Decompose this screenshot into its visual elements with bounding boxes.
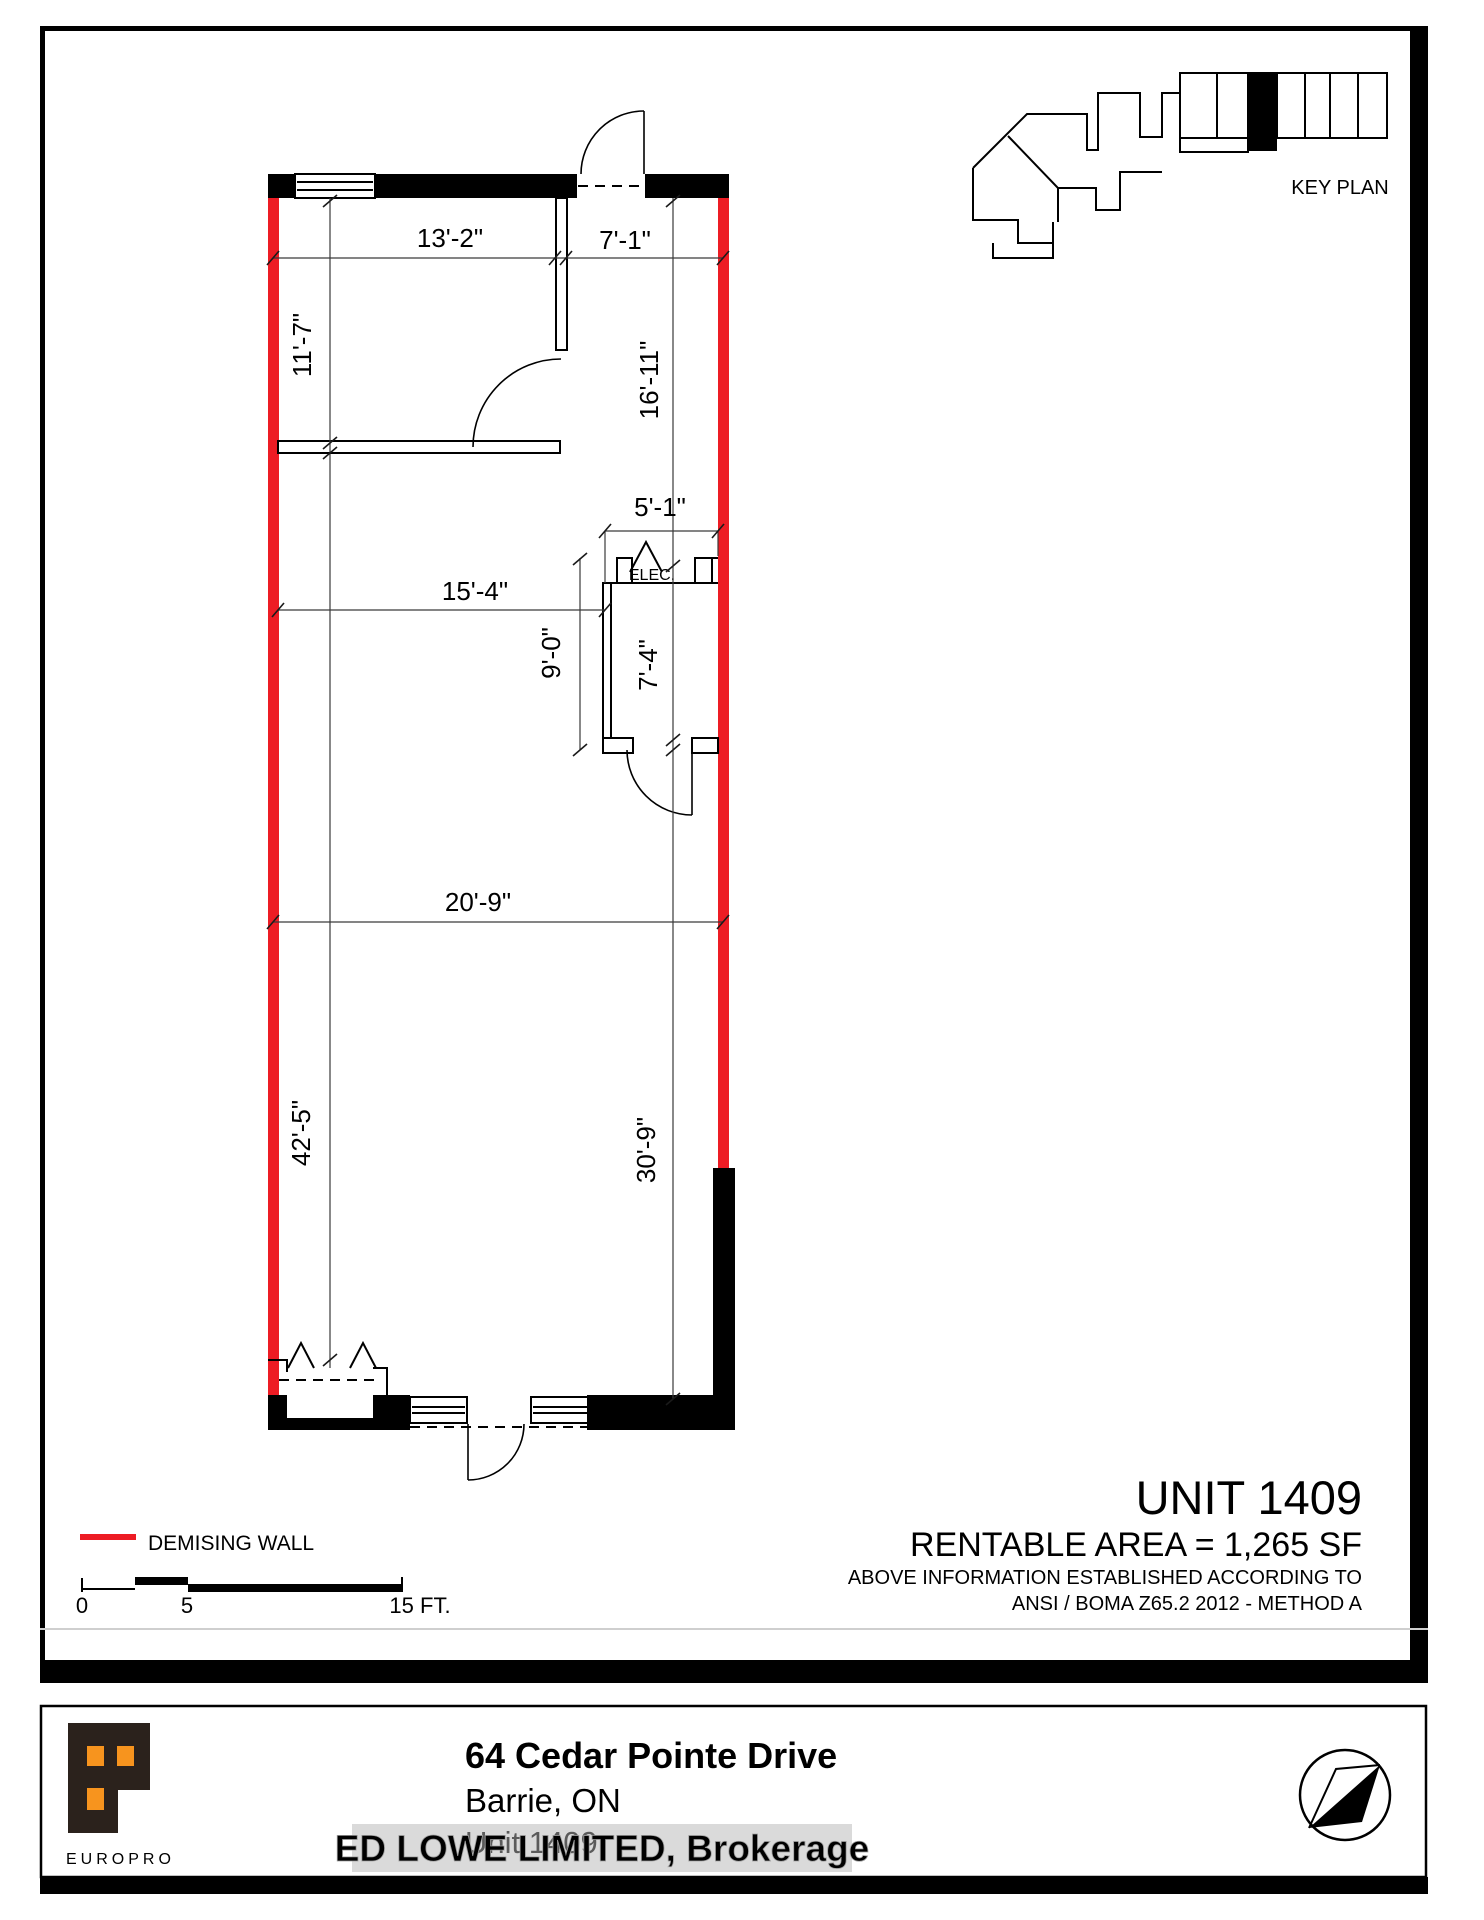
footer: EUROPRO 64 Cedar Pointe Drive Barrie, ON… bbox=[40, 1706, 1428, 1894]
key-plan: KEY PLAN bbox=[973, 73, 1389, 258]
elec-door-swing bbox=[627, 750, 692, 815]
dim-lower-width: 20'-9" bbox=[445, 887, 511, 917]
dim-right-upper-depth: 16'-11" bbox=[634, 341, 664, 420]
footer-bottom-bar bbox=[40, 1877, 1428, 1894]
unit-title: UNIT 1409 bbox=[1136, 1471, 1362, 1524]
dim-upper-room-depth: 11'-7" bbox=[287, 313, 317, 377]
vestibule-outline-right bbox=[373, 1368, 387, 1395]
dim-top-left-width: 13'-2" bbox=[417, 223, 483, 253]
dim-right-lower-depth: 30'-9" bbox=[631, 1117, 661, 1183]
north-arrow-icon bbox=[1300, 1750, 1390, 1840]
entry-door-swing bbox=[468, 1424, 524, 1480]
scale-zero: 0 bbox=[76, 1593, 88, 1618]
wall-top-middle bbox=[375, 174, 577, 198]
legend-demising-swatch bbox=[80, 1534, 136, 1540]
scale-five: 5 bbox=[181, 1593, 193, 1618]
scale-fifteen: 15 FT. bbox=[389, 1593, 450, 1618]
key-plan-unit-row bbox=[1180, 73, 1387, 138]
floor-plan: ELEC. bbox=[268, 111, 735, 1480]
boma-note-line2: ANSI / BOMA Z65.2 2012 - METHOD A bbox=[1012, 1593, 1363, 1615]
window-top bbox=[295, 174, 375, 198]
dim-elec-inner-depth: 7'-4" bbox=[633, 639, 663, 691]
elec-closet-notch-right bbox=[695, 558, 712, 583]
wall-top-left-corner bbox=[268, 174, 295, 198]
top-door-swing bbox=[581, 111, 644, 174]
key-plan-label: KEY PLAN bbox=[1291, 177, 1388, 199]
date-strip: April 19, 2016 © 2016 Space Database Inc… bbox=[40, 1660, 1428, 1683]
window-bottom-left bbox=[410, 1397, 467, 1423]
elec-closet-bottom-left bbox=[603, 738, 633, 753]
legend-demising-label: DEMISING WALL bbox=[148, 1532, 314, 1555]
dim-elec-width: 5'-1" bbox=[634, 492, 686, 522]
plan-date: April 19, 2016 bbox=[66, 1662, 177, 1682]
copyright: © 2016 Space Database Inc. All Rights Re… bbox=[878, 1662, 1270, 1682]
dim-left-depth: 42'-5" bbox=[286, 1100, 316, 1166]
legend: DEMISING WALL bbox=[80, 1532, 314, 1555]
rentable-area: RENTABLE AREA = 1,265 SF bbox=[910, 1526, 1362, 1564]
dim-mid-width: 15'-4" bbox=[442, 576, 508, 606]
boma-note-line1: ABOVE INFORMATION ESTABLISHED ACCORDING … bbox=[848, 1567, 1362, 1589]
wall-right-lower bbox=[713, 1168, 735, 1430]
europro-logo bbox=[68, 1723, 150, 1833]
brand-name: EUROPRO bbox=[66, 1851, 175, 1868]
floor-plan-sheet: KEY PLAN ELEC. bbox=[0, 0, 1484, 1920]
scale-bar: 0 5 15 FT. bbox=[76, 1577, 451, 1618]
demising-wall-left bbox=[268, 198, 279, 1397]
page-border bbox=[40, 26, 1428, 1682]
vestibule-symbol-2 bbox=[350, 1343, 376, 1368]
title-block: UNIT 1409 RENTABLE AREA = 1,265 SF ABOVE… bbox=[848, 1471, 1363, 1615]
window-bottom-right bbox=[531, 1397, 590, 1423]
vestibule-symbol-1 bbox=[288, 1343, 314, 1368]
address-line2: Barrie, ON bbox=[465, 1782, 621, 1819]
wall-bottom-right bbox=[587, 1395, 735, 1430]
address-line1: 64 Cedar Pointe Drive bbox=[465, 1735, 837, 1776]
room-door-swing bbox=[473, 359, 561, 447]
key-plan-highlighted-unit bbox=[1248, 73, 1277, 151]
dimensions: 13'-2" 7'-1" 11'-7" 42'-5" 16'-11" 7'-4"… bbox=[267, 195, 729, 1405]
demising-wall-right bbox=[718, 198, 729, 1168]
elec-closet-bottom-right bbox=[692, 738, 718, 753]
wall-top-right bbox=[645, 174, 729, 198]
wall-room-partition-vertical bbox=[556, 198, 567, 350]
wall-room-partition-horizontal bbox=[278, 441, 560, 453]
brokerage-watermark: ED LOWE LIMITED, Brokerage bbox=[335, 1828, 870, 1869]
dim-top-right-width: 7'-1" bbox=[599, 225, 651, 255]
dim-elec-outer-depth: 9'-0" bbox=[536, 627, 566, 679]
